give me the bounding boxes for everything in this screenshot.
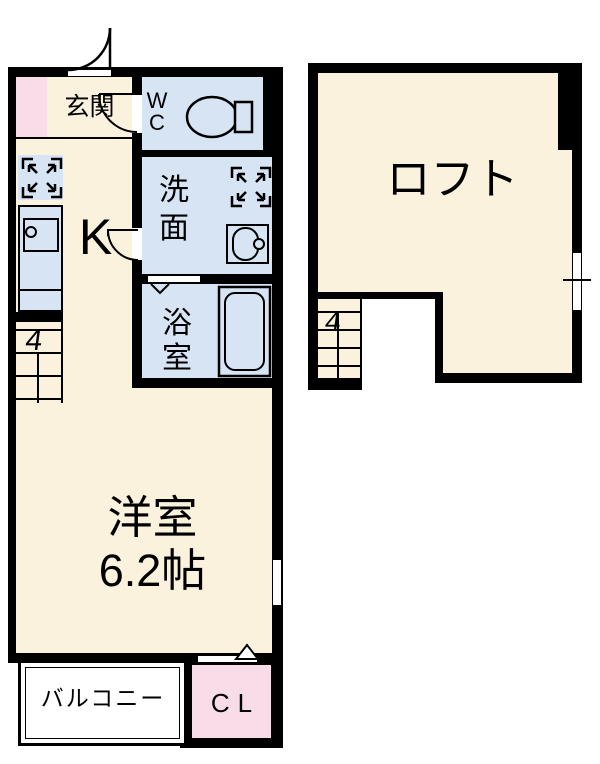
bath-folding-door-icon bbox=[151, 284, 169, 293]
balcony-label: バルコニー bbox=[22, 687, 184, 710]
door-swing-arc-icon bbox=[68, 28, 110, 70]
washroom-label: 洗面 bbox=[157, 172, 191, 247]
entrance-label: 玄関 bbox=[47, 95, 132, 120]
sink-icon bbox=[18, 219, 63, 290]
toilet-label: WC bbox=[145, 90, 169, 134]
closet-door-triangle-icon bbox=[236, 645, 258, 659]
bathroom-label: 浴室 bbox=[160, 307, 194, 376]
closet-label: CL bbox=[190, 690, 273, 716]
main-room-size: 6.2帖 bbox=[55, 545, 250, 598]
first-floor-stairs-number: 4 bbox=[21, 326, 47, 356]
main-room-label: 洋室 bbox=[55, 492, 250, 545]
washbasin-icon bbox=[227, 225, 268, 263]
toilet-icon bbox=[187, 97, 252, 137]
kitchen-label: K bbox=[68, 212, 123, 262]
expand-arrows-icon bbox=[232, 168, 270, 206]
bathtub-icon bbox=[219, 287, 270, 376]
loft-label: ロフト bbox=[345, 158, 560, 202]
expand-arrows-icon bbox=[23, 159, 61, 197]
floor-plan: 玄関 WC 洗面 K 浴室 洋室 6.2帖 バルコニー CL ロフト 4 4 bbox=[0, 0, 600, 764]
loft-stairs-number: 4 bbox=[320, 308, 346, 336]
